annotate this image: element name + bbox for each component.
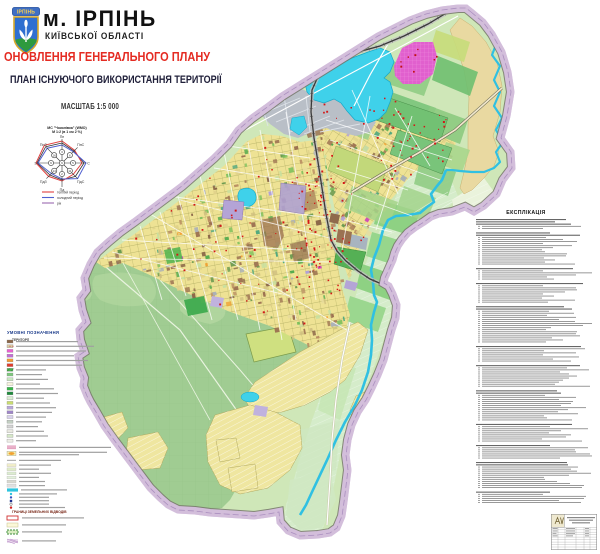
- svg-text:С: С: [87, 162, 90, 166]
- svg-text:З: З: [34, 162, 36, 166]
- svg-text:ПнС: ПнС: [77, 143, 85, 147]
- svg-text:рік: рік: [57, 201, 62, 205]
- svg-text:14: 14: [53, 169, 57, 173]
- svg-text:ПдЗ: ПдЗ: [40, 180, 47, 184]
- svg-text:Пн: Пн: [60, 135, 65, 139]
- svg-text:холодний період: холодний період: [57, 196, 83, 200]
- svg-text:ЕКСПЛІКАЦІЯ: ЕКСПЛІКАЦІЯ: [506, 210, 545, 216]
- svg-text:ПдС: ПдС: [77, 180, 85, 184]
- svg-text:ГРАНИЦІ ЗЕМЕЛЬНИХ ВІДВОДІВ: ГРАНИЦІ ЗЕМЕЛЬНИХ ВІДВОДІВ: [12, 510, 67, 514]
- svg-text:УМОВНІ ПОЗНАЧЕННЯ: УМОВНІ ПОЗНАЧЕННЯ: [7, 330, 59, 335]
- svg-text:ПнЗ: ПнЗ: [40, 143, 47, 147]
- svg-text:ІРПІНЬ: ІРПІНЬ: [17, 10, 35, 16]
- svg-text:теплий період: теплий період: [57, 190, 79, 194]
- svg-text:16: 16: [53, 153, 57, 157]
- svg-text:11: 11: [68, 169, 71, 173]
